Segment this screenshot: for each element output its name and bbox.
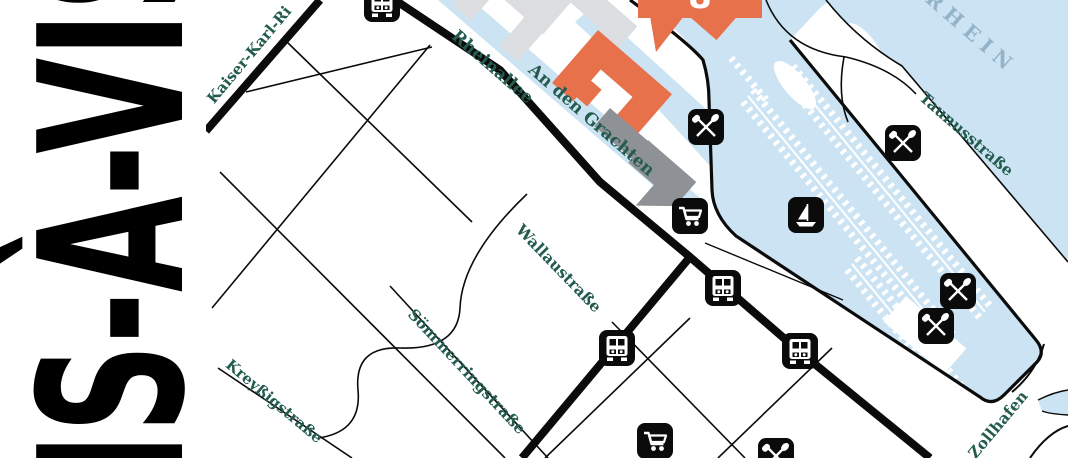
restaurant-icon xyxy=(688,109,724,145)
cart-icon xyxy=(672,198,708,234)
restaurant-icon xyxy=(885,125,921,161)
tram-icon xyxy=(599,330,635,366)
sailboat-icon xyxy=(788,197,824,233)
tram-icon xyxy=(782,333,818,369)
cart-icon xyxy=(637,423,673,458)
banner-text: VIS-À-VIS xyxy=(0,0,230,458)
tram-icon xyxy=(705,270,741,306)
tram-icon xyxy=(364,0,400,22)
city-map: Kaiser-Karl-Ri Rheinallee An den Grachte… xyxy=(0,0,1068,458)
banner: VIS-À-VIS xyxy=(0,0,230,458)
callout-label: 8 xyxy=(688,0,712,17)
restaurant-icon xyxy=(918,308,954,344)
restaurant-icon xyxy=(758,438,794,458)
restaurant-icon xyxy=(940,273,976,309)
